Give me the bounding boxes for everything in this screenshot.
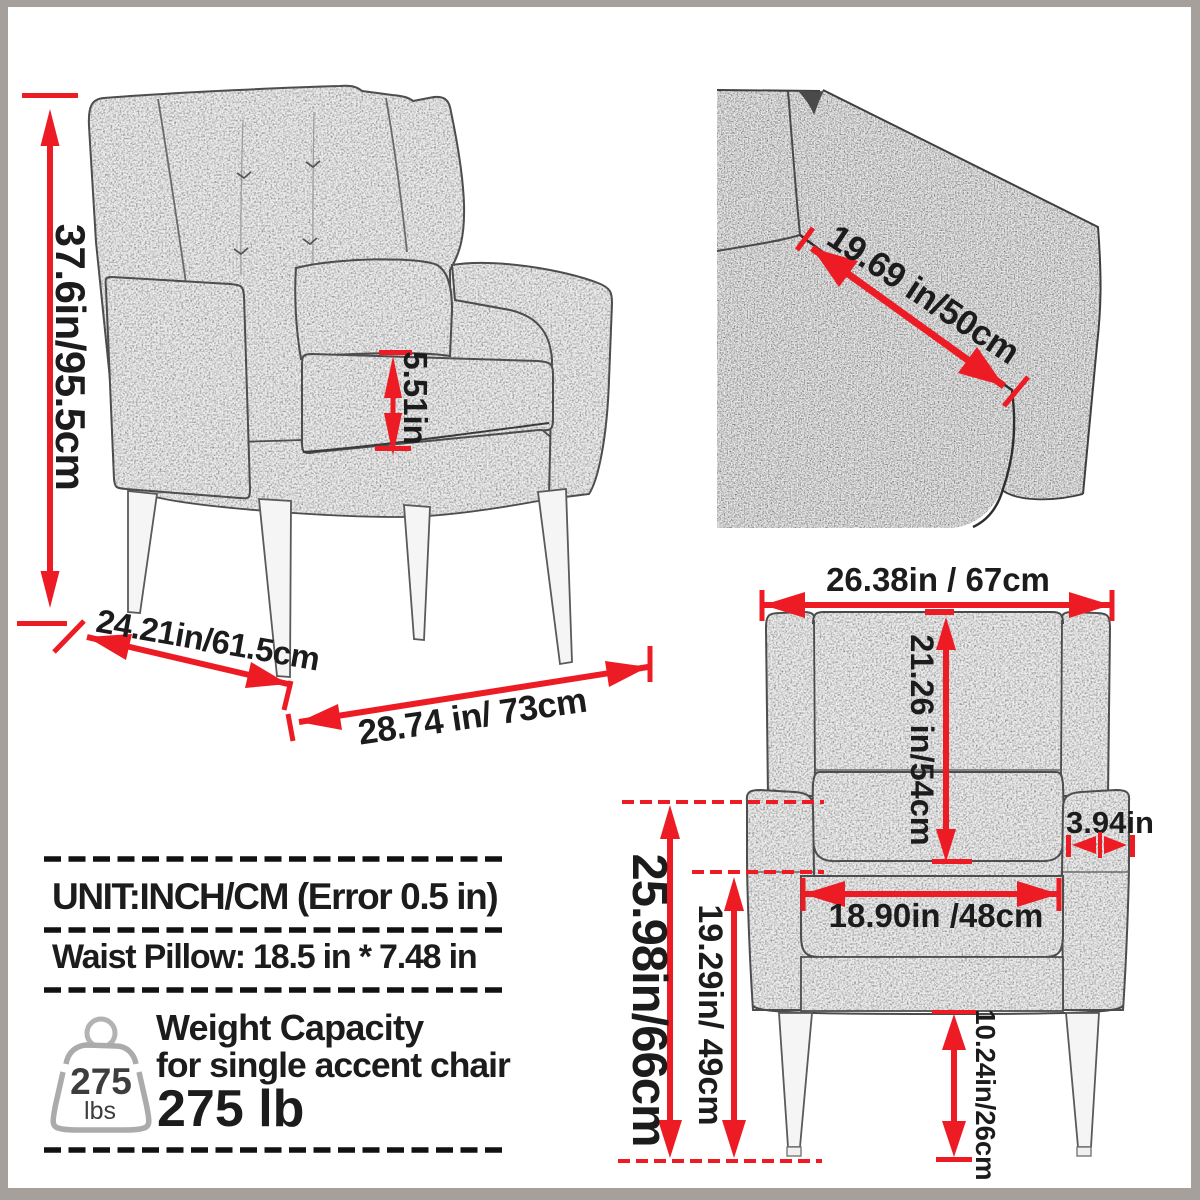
svg-text:for single accent chair: for single accent chair [156,1045,511,1085]
svg-text:Waist Pillow: 18.5 in * 7.48 i: Waist Pillow: 18.5 in * 7.48 in [52,938,476,976]
svg-text:18.90in /48cm: 18.90in /48cm [829,897,1044,934]
svg-text:Weight Capacity: Weight Capacity [156,1007,424,1048]
svg-text:lbs: lbs [84,1097,116,1125]
svg-text:UNIT:INCH/CM (Error 0.5 in): UNIT:INCH/CM (Error 0.5 in) [52,876,497,917]
svg-text:37.6in/95.5cm: 37.6in/95.5cm [47,224,94,491]
svg-text:10.24in/26cm: 10.24in/26cm [970,1009,1001,1180]
svg-text:5.51in: 5.51in [397,351,434,445]
svg-text:21.26 in/54cm: 21.26 in/54cm [904,634,940,845]
svg-text:3.94in: 3.94in [1066,805,1154,840]
svg-text:25.98in/66cm: 25.98in/66cm [622,853,676,1146]
svg-text:19.29in/ 49cm: 19.29in/ 49cm [691,904,729,1125]
svg-text:275: 275 [70,1061,132,1102]
svg-text:26.38in / 67cm: 26.38in / 67cm [826,561,1050,598]
svg-text:275 lb: 275 lb [157,1080,304,1138]
